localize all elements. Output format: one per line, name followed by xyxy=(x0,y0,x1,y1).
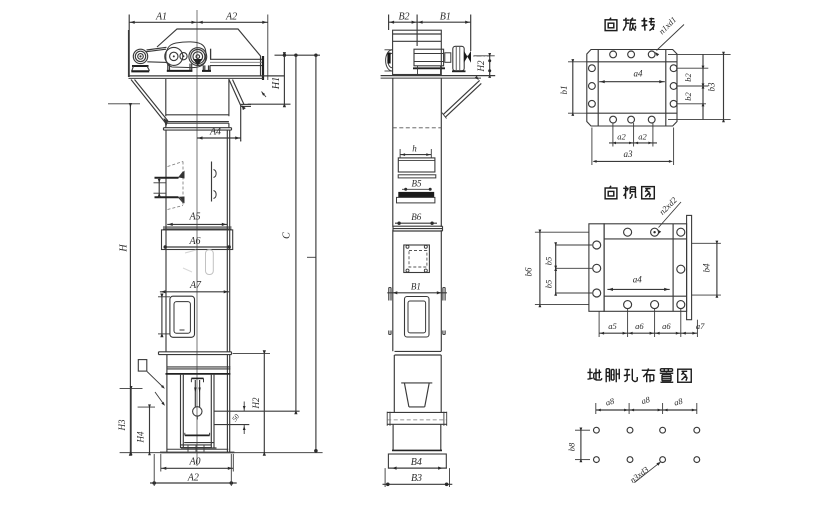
svg-text:B1: B1 xyxy=(440,12,451,23)
svg-text:a7: a7 xyxy=(696,321,705,331)
svg-text:b5: b5 xyxy=(544,257,554,266)
svg-text:a4: a4 xyxy=(634,69,644,79)
svg-text:a8: a8 xyxy=(640,394,652,406)
svg-text:b5: b5 xyxy=(544,280,554,289)
svg-text:H1: H1 xyxy=(271,77,282,90)
svg-text:A1: A1 xyxy=(155,12,167,23)
svg-text:B4: B4 xyxy=(411,457,422,468)
svg-text:A2: A2 xyxy=(225,12,237,23)
svg-text:C: C xyxy=(282,232,293,239)
svg-text:b4: b4 xyxy=(701,263,711,273)
svg-text:B3: B3 xyxy=(411,473,422,484)
svg-text:a5: a5 xyxy=(608,321,617,331)
svg-text:H: H xyxy=(119,244,130,253)
svg-text:a8: a8 xyxy=(604,395,616,407)
svg-text:B1: B1 xyxy=(411,282,421,292)
svg-text:b3: b3 xyxy=(707,82,717,92)
svg-text:b2: b2 xyxy=(683,73,693,82)
svg-text:a6: a6 xyxy=(635,321,644,331)
svg-text:B5: B5 xyxy=(412,179,422,189)
svg-text:A0: A0 xyxy=(188,457,200,468)
svg-text:B6: B6 xyxy=(411,212,421,222)
svg-text:a3: a3 xyxy=(624,149,634,159)
svg-text:A4: A4 xyxy=(209,127,221,138)
svg-text:A5: A5 xyxy=(188,211,200,222)
svg-text:50: 50 xyxy=(231,412,242,423)
svg-text:a4: a4 xyxy=(633,275,643,285)
svg-text:b6: b6 xyxy=(524,267,534,277)
svg-text:H3: H3 xyxy=(117,419,127,431)
svg-text:A6: A6 xyxy=(188,236,200,247)
svg-text:H2: H2 xyxy=(476,60,486,72)
svg-text:b2: b2 xyxy=(683,92,693,101)
svg-text:H4: H4 xyxy=(136,431,146,443)
svg-text:a8: a8 xyxy=(673,395,685,407)
svg-text:n2xd2: n2xd2 xyxy=(657,194,679,216)
svg-text:a2: a2 xyxy=(638,132,647,142)
svg-text:A2: A2 xyxy=(187,473,199,484)
svg-text:H2: H2 xyxy=(251,397,261,409)
svg-text:b8: b8 xyxy=(567,442,577,451)
svg-text:b1: b1 xyxy=(559,86,569,95)
svg-text:B2: B2 xyxy=(398,12,409,23)
svg-text:a6: a6 xyxy=(662,321,671,331)
svg-text:n3xd3: n3xd3 xyxy=(628,464,651,485)
svg-text:a2: a2 xyxy=(617,132,626,142)
svg-text:A7: A7 xyxy=(189,280,202,291)
svg-text:h: h xyxy=(412,144,417,154)
